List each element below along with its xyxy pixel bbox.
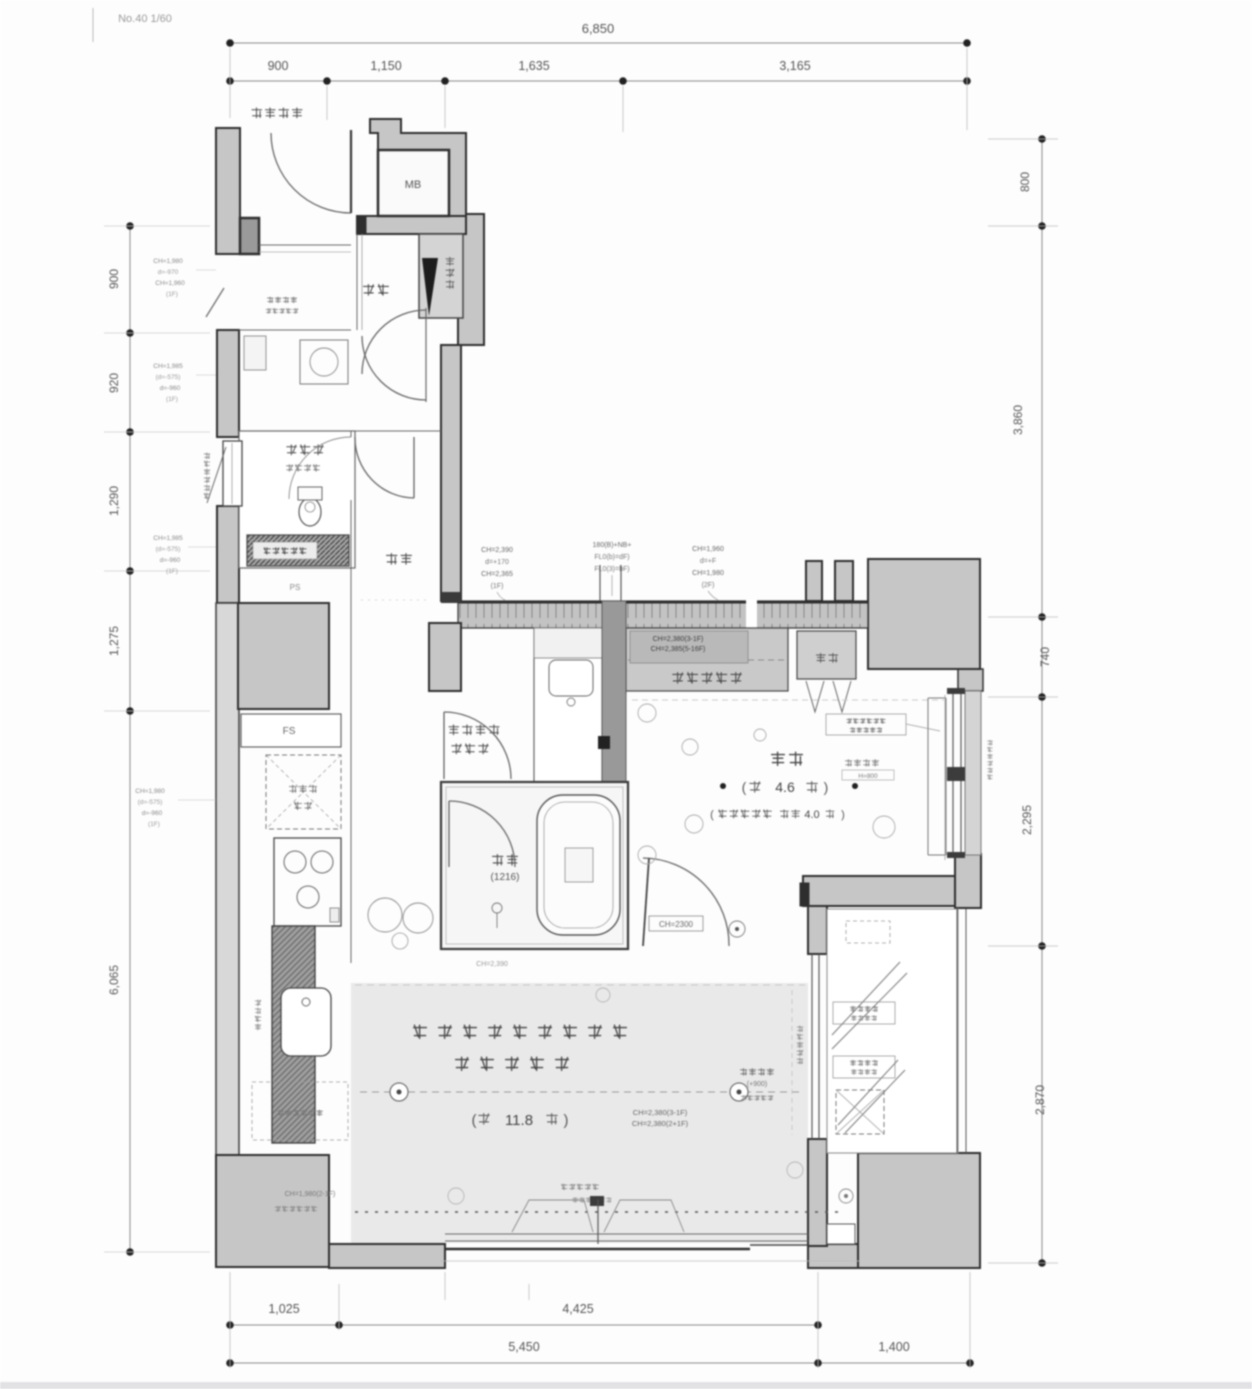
- svg-text:3,860: 3,860: [1011, 405, 1025, 435]
- svg-text:FS: FS: [283, 726, 296, 737]
- svg-text:CH=2,365: CH=2,365: [481, 571, 513, 578]
- svg-text:CH=2,390: CH=2,390: [476, 961, 508, 968]
- svg-text:(d=-575): (d=-575): [156, 546, 181, 553]
- svg-text:800: 800: [1018, 172, 1032, 192]
- svg-text:PS: PS: [290, 583, 301, 592]
- svg-text:(2F): (2F): [702, 582, 715, 589]
- svg-text:11.8: 11.8: [505, 1112, 533, 1129]
- svg-text:(1F): (1F): [148, 821, 160, 828]
- svg-text:6,850: 6,850: [582, 21, 615, 36]
- svg-text:(1F): (1F): [166, 291, 178, 298]
- svg-text:CH=1,960: CH=1,960: [692, 546, 724, 553]
- svg-text:(: (: [472, 1112, 477, 1129]
- svg-text:1,025: 1,025: [268, 1302, 299, 1316]
- svg-text:): ): [824, 779, 829, 795]
- svg-text:1,290: 1,290: [107, 486, 121, 516]
- svg-text:d=+170: d=+170: [485, 559, 509, 566]
- svg-text:(1F): (1F): [166, 568, 178, 575]
- svg-text:CH=2300: CH=2300: [659, 920, 694, 929]
- svg-text:6,065: 6,065: [107, 965, 121, 995]
- svg-text:(d=-575): (d=-575): [138, 799, 163, 806]
- svg-text:1,400: 1,400: [878, 1340, 909, 1354]
- svg-text:CH=1,980: CH=1,980: [153, 258, 183, 265]
- svg-text:MB: MB: [405, 179, 422, 191]
- svg-text:d=-970: d=-970: [158, 269, 179, 276]
- svg-text:d=-960: d=-960: [142, 810, 163, 817]
- svg-text:CH=1,980: CH=1,980: [692, 570, 724, 577]
- svg-text:(1216): (1216): [491, 872, 520, 883]
- svg-text:5,450: 5,450: [508, 1340, 539, 1354]
- svg-text:180(B)+NB+: 180(B)+NB+: [593, 542, 632, 549]
- svg-text:900: 900: [268, 59, 289, 73]
- svg-text:): ): [564, 1112, 569, 1129]
- svg-text:2,870: 2,870: [1033, 1085, 1047, 1115]
- svg-text:1,275: 1,275: [107, 626, 121, 656]
- svg-text:No.40 1/60: No.40 1/60: [118, 13, 172, 25]
- svg-text:4.0: 4.0: [804, 809, 819, 821]
- svg-text:2,295: 2,295: [1020, 805, 1034, 835]
- svg-text:d=+F: d=+F: [700, 558, 716, 565]
- svg-text:(1F): (1F): [166, 396, 178, 403]
- svg-text:CH=1,985: CH=1,985: [153, 363, 183, 370]
- svg-text:CH=1,980(2-1F): CH=1,980(2-1F): [285, 1191, 336, 1198]
- svg-text:1,635: 1,635: [518, 59, 549, 73]
- svg-text:FL0(b)=dF): FL0(b)=dF): [594, 554, 629, 561]
- svg-text:1,150: 1,150: [370, 59, 401, 73]
- svg-text:740: 740: [1038, 647, 1052, 667]
- svg-text:CH=2,385(5-16F): CH=2,385(5-16F): [651, 646, 706, 653]
- svg-text:(: (: [710, 809, 714, 821]
- svg-text:CH=2,380(3-1F): CH=2,380(3-1F): [633, 1108, 688, 1117]
- svg-text:(: (: [742, 779, 747, 795]
- svg-text:900: 900: [107, 269, 121, 289]
- svg-text:CH=2,390: CH=2,390: [481, 547, 513, 554]
- svg-text:3,165: 3,165: [779, 59, 810, 73]
- svg-text:(+900): (+900): [747, 1081, 767, 1088]
- svg-text:d=-960: d=-960: [160, 385, 181, 392]
- svg-text:920: 920: [107, 373, 121, 393]
- svg-text:CH=1,985: CH=1,985: [153, 535, 183, 542]
- svg-text:(d=-575): (d=-575): [156, 374, 181, 381]
- svg-text:d=-960: d=-960: [160, 557, 181, 564]
- svg-text:CH=1,960: CH=1,960: [155, 280, 185, 287]
- svg-text:CH=2,380(2+1F): CH=2,380(2+1F): [632, 1119, 689, 1128]
- svg-text:H=800: H=800: [858, 773, 878, 780]
- svg-text:4,425: 4,425: [562, 1302, 593, 1316]
- svg-text:(1F): (1F): [491, 583, 504, 590]
- svg-text:): ): [841, 809, 845, 821]
- svg-text:CH=2,380(3-1F): CH=2,380(3-1F): [653, 636, 704, 643]
- svg-text:CH=1,980: CH=1,980: [135, 788, 165, 795]
- svg-text:4.6: 4.6: [775, 779, 795, 795]
